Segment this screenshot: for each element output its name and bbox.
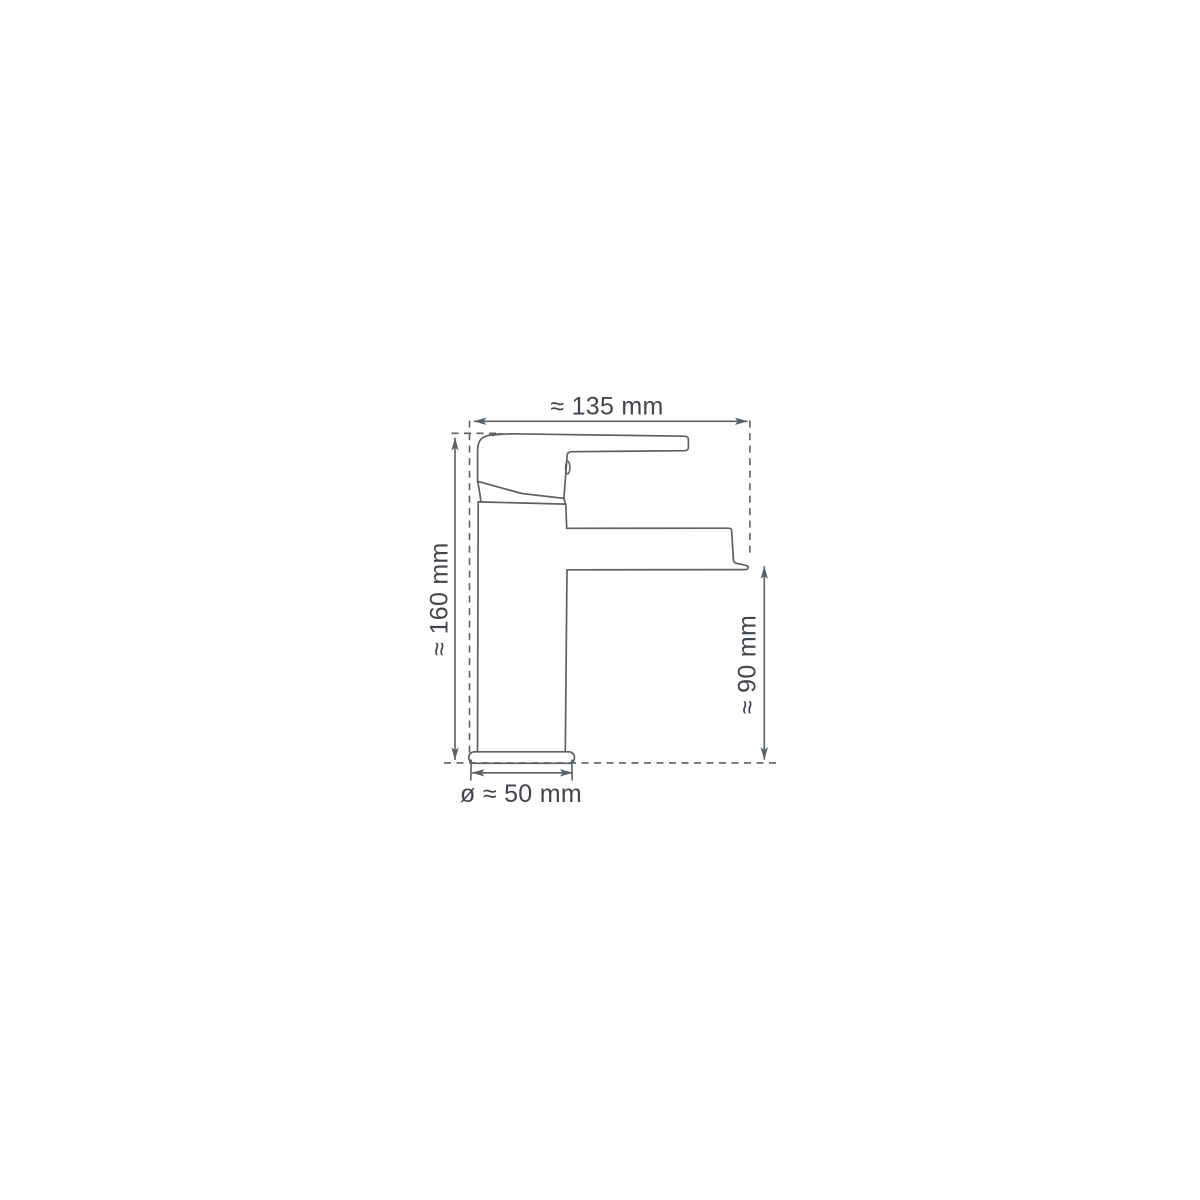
base-diameter-dimension-label: ø ≈ 50 mm <box>460 780 582 808</box>
handle-joint-oval <box>566 461 570 474</box>
faucet-spout-and-body-right <box>565 528 748 751</box>
faucet-outline-group <box>469 434 748 764</box>
base-plinth <box>469 752 575 764</box>
spout-height-dimension-label: ≈ 90 mm <box>733 615 761 714</box>
neck-right-edge <box>566 505 567 529</box>
dimension-arrows-group <box>455 421 764 780</box>
collar-left-curve <box>478 481 481 502</box>
body-top-line <box>478 502 565 504</box>
dimension-labels-group: ≈ 135 mm ≈ 160 mm ≈ 90 mm ø ≈ 50 mm <box>425 393 761 809</box>
faucet-dimension-diagram: ≈ 135 mm ≈ 160 mm ≈ 90 mm ø ≈ 50 mm <box>0 0 1200 1200</box>
technical-drawing-canvas: ≈ 135 mm ≈ 160 mm ≈ 90 mm ø ≈ 50 mm <box>0 0 1200 1200</box>
body-left-edge <box>478 502 479 752</box>
extension-lines-group <box>444 421 776 763</box>
faucet-handle-lever <box>478 434 689 499</box>
height-dimension-label: ≈ 160 mm <box>425 542 453 655</box>
width-dimension-label: ≈ 135 mm <box>550 393 663 421</box>
